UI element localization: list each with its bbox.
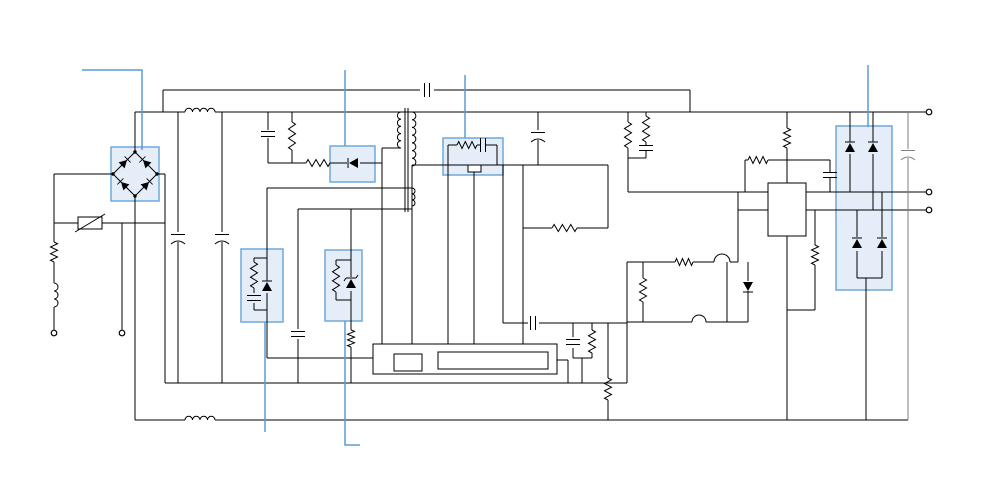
diode	[743, 282, 753, 292]
transformer	[397, 108, 415, 212]
controller-ic-main-block	[438, 352, 548, 369]
junction-dot	[155, 172, 158, 175]
clamp-resistor	[306, 160, 330, 167]
diode-triangle	[743, 282, 753, 291]
fusible-resistor	[51, 242, 58, 262]
callout-bridge	[82, 70, 142, 150]
output-terminal-mid-1[interactable]	[926, 189, 932, 195]
regulator-ic	[768, 183, 806, 236]
input-terminal-line[interactable]	[51, 330, 57, 336]
schematic-canvas	[0, 0, 1000, 500]
output-rectifier-highlight[interactable]	[836, 126, 892, 290]
bleeder-resistor	[289, 122, 296, 150]
junction-dot	[133, 150, 136, 153]
resistor	[625, 122, 632, 148]
resistor	[675, 259, 693, 266]
clamp-device	[468, 165, 481, 172]
capacitor	[823, 173, 837, 178]
transformer-winding	[397, 112, 401, 148]
output-terminal-mid-2[interactable]	[926, 207, 932, 213]
transistor-2	[692, 315, 706, 322]
resistor	[640, 278, 647, 302]
output-terminal-positive[interactable]	[926, 109, 932, 115]
junction-dot	[133, 194, 136, 197]
transformer-winding	[412, 112, 416, 166]
cm-choke-top	[185, 108, 215, 112]
resistor	[348, 330, 355, 347]
sense-resistor	[552, 225, 577, 232]
capacitor	[566, 340, 580, 345]
shunt-zener-highlight[interactable]	[325, 250, 362, 321]
input-terminal-neutral[interactable]	[119, 330, 125, 336]
cm-choke-bottom	[185, 416, 215, 420]
capacitor	[531, 316, 536, 330]
y-capacitor	[425, 83, 430, 97]
junction-dot	[111, 172, 114, 175]
x-capacitor	[261, 132, 275, 137]
controller-ic-left-block	[394, 354, 422, 371]
shunt-network-1-highlight[interactable]	[241, 249, 283, 322]
resistor	[605, 378, 612, 400]
resistor	[748, 157, 768, 164]
bridge-rectifier-highlight[interactable]	[111, 147, 159, 201]
resistor	[643, 116, 650, 142]
input-inductor	[54, 283, 58, 307]
resistor	[784, 128, 791, 148]
varistor	[75, 214, 105, 232]
resistor	[589, 330, 596, 353]
capacitor	[291, 332, 305, 337]
transistor-1	[714, 254, 730, 262]
resistor	[812, 245, 819, 265]
capacitor	[639, 146, 653, 151]
schematic-svg	[0, 0, 1000, 500]
